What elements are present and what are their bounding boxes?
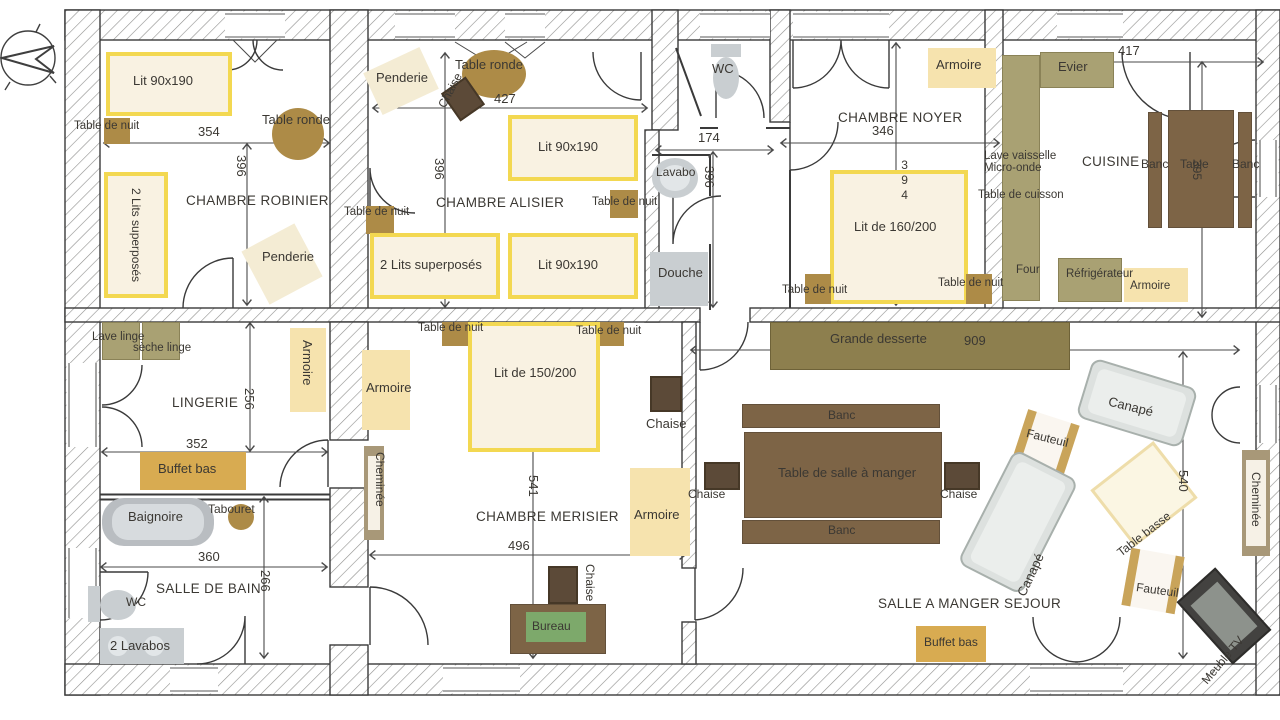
chair-label: Chaise xyxy=(646,417,686,431)
wc-label: WC xyxy=(126,596,146,609)
bed-label: Lit 90x190 xyxy=(538,140,598,154)
fireplace-label: Cheminée xyxy=(373,452,386,507)
stool-label: Tabouret xyxy=(208,503,255,516)
shower-label: Douche xyxy=(658,266,703,280)
toilet2-tank-icon xyxy=(88,586,100,622)
nightstand-label: Table de nuit xyxy=(782,284,847,296)
round-table-label: Table ronde xyxy=(455,58,523,72)
nightstand-label: Table de nuit xyxy=(576,325,641,337)
washbasin-label: Lavabo xyxy=(656,166,695,179)
wardrobe-label: Armoire xyxy=(366,381,412,395)
oven-label: Four xyxy=(1016,264,1040,276)
chair-left-sejour xyxy=(704,462,740,490)
dim-496: 496 xyxy=(508,539,530,553)
chair-right-merisier xyxy=(650,376,682,412)
floorplan: Lit 90x190 Table de nuit 354 Table ronde… xyxy=(0,0,1280,720)
room-name-merisier: CHAMBRE MERISIER xyxy=(476,510,619,524)
sideboard-label: Grande desserte xyxy=(830,332,927,346)
chair-right-sejour xyxy=(944,462,980,490)
wardrobe-label: Penderie xyxy=(376,71,428,85)
dim-540: 540 xyxy=(1176,470,1190,492)
fridge-label: Réfrigérateur xyxy=(1066,268,1133,280)
round-table-label: Table ronde xyxy=(262,113,330,127)
nightstand-label: Table de nuit xyxy=(938,277,1003,289)
sideboard-sejour xyxy=(770,322,1070,370)
sinks-label: 2 Lavabos xyxy=(110,639,170,653)
room-name-noyer: CHAMBRE NOYER xyxy=(838,111,962,125)
cooktop-label: Table de cuisson xyxy=(978,189,1064,201)
room-name-wc: WC xyxy=(712,62,734,76)
dim-174: 174 xyxy=(698,131,720,145)
nightstand-label: Table de nuit xyxy=(344,206,409,218)
bench-label: Banc xyxy=(1232,158,1259,171)
room-name-cuisine: CUISINE xyxy=(1082,155,1140,169)
dim-346: 346 xyxy=(872,124,894,138)
armchair-bottom xyxy=(1121,548,1184,614)
room-name-robinier: CHAMBRE ROBINIER xyxy=(186,194,329,208)
bed-label: Lit 90x190 xyxy=(133,74,193,88)
wardrobe-label: Armoire xyxy=(936,58,982,72)
microwave-label: Micro-onde xyxy=(984,162,1042,174)
bathtub-label: Baignoire xyxy=(128,510,183,524)
toilet-tank-icon xyxy=(711,44,741,57)
nightstand-label: Table de nuit xyxy=(74,120,139,132)
chair-label: Chaise xyxy=(583,564,596,601)
dim-394: 394 xyxy=(898,158,911,203)
buffet-label: Buffet bas xyxy=(924,636,978,649)
room-name-alisier: CHAMBRE ALISIER xyxy=(436,196,564,210)
dining-table-label: Table de salle à manger xyxy=(778,466,916,480)
dim-360: 360 xyxy=(198,550,220,564)
desk-chair-merisier xyxy=(548,566,578,604)
dim-396: 396 xyxy=(432,158,446,180)
bench-label: Banc xyxy=(1141,158,1168,171)
nightstand-label: Table de nuit xyxy=(592,196,657,208)
desk-label: Bureau xyxy=(532,620,571,633)
dim-417: 417 xyxy=(1118,44,1140,58)
dim-352: 352 xyxy=(186,437,208,451)
wardrobe-label: Armoire xyxy=(634,508,680,522)
wardrobe-label: Penderie xyxy=(262,250,314,264)
dim-354: 354 xyxy=(198,125,220,139)
bench-label: Banc xyxy=(828,524,855,537)
chair-label: Chaise xyxy=(688,488,725,501)
dim-256: 256 xyxy=(242,388,256,410)
room-name-lingerie: LINGERIE xyxy=(172,396,238,410)
room-name-bain: SALLE DE BAIN xyxy=(156,582,261,596)
wardrobe-label: Armoire xyxy=(1130,280,1170,292)
bed-merisier xyxy=(468,322,600,452)
dim-541: 541 xyxy=(526,475,540,497)
dryer-machine xyxy=(142,322,180,360)
sink-label: Evier xyxy=(1058,60,1088,74)
wardrobe-label: Armoire xyxy=(300,340,314,386)
dim-909: 909 xyxy=(964,334,986,348)
dim-395: 395 xyxy=(1190,160,1203,180)
dryer-label: sèche linge xyxy=(133,342,191,354)
bunk-label: 2 Lits superposés xyxy=(380,258,482,272)
dim-396: 396 xyxy=(702,166,716,188)
bench-label: Banc xyxy=(828,409,855,422)
fireplace-label: Cheminée xyxy=(1249,472,1262,527)
bed-label: Lit de 160/200 xyxy=(854,220,936,234)
bed-label: Lit de 150/200 xyxy=(494,366,576,380)
dim-427: 427 xyxy=(494,92,516,106)
dishwasher-label: Lave vaisselle xyxy=(984,150,1056,162)
buffet-label: Buffet bas xyxy=(158,462,216,476)
bed-label: Lit 90x190 xyxy=(538,258,598,272)
chair-label: Chaise xyxy=(940,488,977,501)
bunk-label: 2 Lits superposés xyxy=(129,188,142,282)
compass-icon xyxy=(1,24,56,90)
dim-396: 396 xyxy=(234,155,248,177)
room-name-sejour: SALLE A MANGER SEJOUR xyxy=(878,597,1061,611)
nightstand-label: Table de nuit xyxy=(418,322,483,334)
